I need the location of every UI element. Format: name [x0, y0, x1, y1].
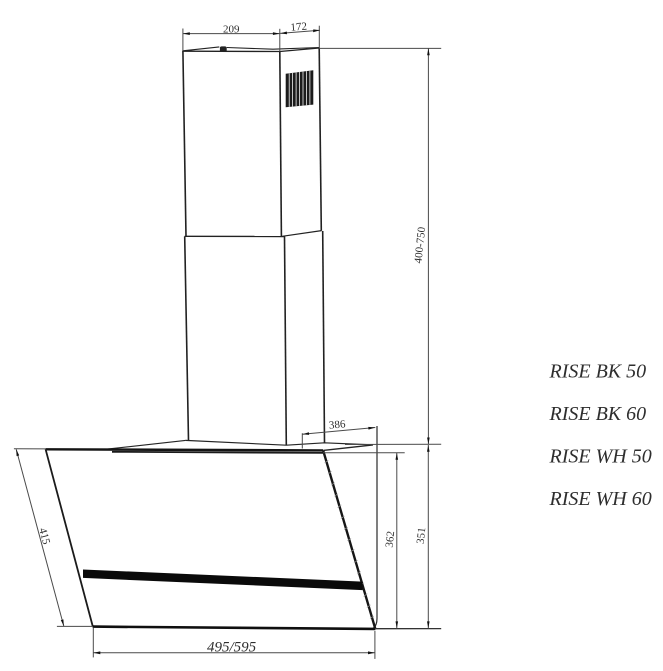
- svg-text:172: 172: [290, 21, 307, 34]
- svg-text:RISE WH 60: RISE WH 60: [549, 488, 652, 510]
- svg-text:386: 386: [328, 418, 346, 432]
- svg-text:RISE BK 50: RISE BK 50: [549, 361, 647, 383]
- svg-text:351: 351: [415, 527, 429, 545]
- svg-text:RISE BK 60: RISE BK 60: [549, 403, 647, 425]
- svg-text:RISE WH 50: RISE WH 50: [549, 445, 652, 467]
- svg-text:209: 209: [223, 23, 240, 35]
- svg-text:495/595: 495/595: [207, 639, 257, 655]
- svg-text:362: 362: [384, 530, 398, 548]
